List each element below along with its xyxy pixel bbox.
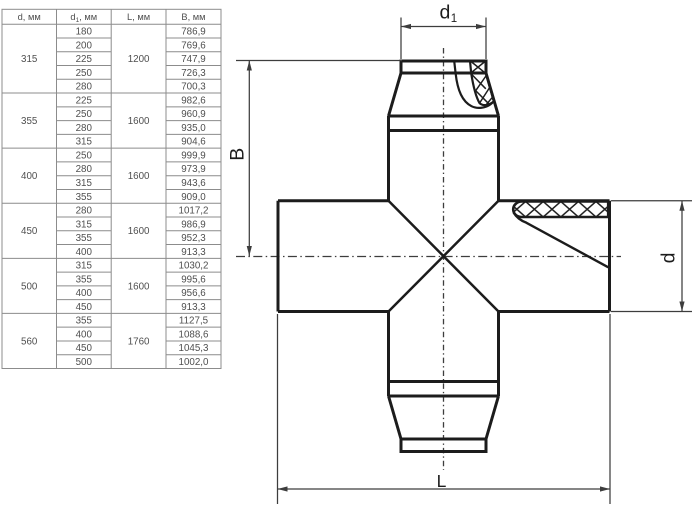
svg-text:355: 355	[21, 116, 38, 127]
svg-text:180: 180	[76, 26, 93, 37]
svg-text:1600: 1600	[128, 226, 150, 237]
svg-text:1760: 1760	[128, 336, 150, 347]
svg-text:999,9: 999,9	[181, 150, 206, 161]
svg-text:786,9: 786,9	[181, 26, 206, 37]
svg-text:L: L	[437, 471, 447, 491]
svg-text:982,6: 982,6	[181, 95, 206, 106]
svg-text:1127,5: 1127,5	[179, 316, 209, 327]
svg-text:747,9: 747,9	[181, 54, 206, 65]
svg-text:1045,3: 1045,3	[179, 343, 210, 354]
svg-text:904,6: 904,6	[181, 137, 206, 148]
svg-text:250: 250	[76, 150, 93, 161]
svg-text:1030,2: 1030,2	[179, 261, 209, 272]
svg-text:726,3: 726,3	[181, 68, 206, 79]
svg-text:280: 280	[76, 164, 93, 175]
svg-text:280: 280	[76, 206, 93, 217]
svg-text:250: 250	[76, 109, 93, 120]
svg-text:315: 315	[21, 54, 38, 65]
svg-text:d: d	[658, 253, 680, 264]
svg-text:355: 355	[76, 192, 93, 203]
svg-text:d: d	[440, 2, 451, 24]
svg-text:280: 280	[76, 82, 93, 93]
svg-text:400: 400	[21, 171, 38, 182]
svg-text:250: 250	[76, 68, 93, 79]
svg-text:700,3: 700,3	[181, 82, 206, 93]
svg-text:315: 315	[76, 219, 93, 230]
svg-text:1: 1	[451, 13, 457, 25]
svg-text:450: 450	[76, 302, 93, 313]
svg-text:956,6: 956,6	[181, 288, 206, 299]
svg-text:355: 355	[76, 233, 93, 244]
svg-text:B, мм: B, мм	[181, 12, 205, 22]
svg-text:315: 315	[76, 137, 93, 148]
svg-text:1017,2: 1017,2	[179, 206, 209, 217]
svg-text:400: 400	[76, 247, 93, 258]
svg-text:769,6: 769,6	[181, 40, 206, 51]
svg-text:1600: 1600	[128, 116, 150, 127]
svg-text:935,0: 935,0	[181, 123, 206, 134]
svg-text:400: 400	[76, 288, 93, 299]
svg-text:952,3: 952,3	[181, 233, 206, 244]
svg-text:913,3: 913,3	[181, 247, 206, 258]
svg-text:d, мм: d, мм	[18, 12, 41, 22]
svg-text:450: 450	[76, 343, 93, 354]
svg-text:L, мм: L, мм	[127, 12, 150, 22]
svg-text:943,6: 943,6	[181, 178, 206, 189]
svg-text:200: 200	[76, 40, 93, 51]
svg-text:986,9: 986,9	[181, 219, 206, 230]
svg-text:315: 315	[76, 178, 93, 189]
svg-text:315: 315	[76, 261, 93, 272]
svg-text:1600: 1600	[128, 281, 150, 292]
svg-text:280: 280	[76, 123, 93, 134]
svg-text:1600: 1600	[128, 171, 150, 182]
svg-text:560: 560	[21, 336, 38, 347]
svg-text:500: 500	[76, 357, 93, 368]
svg-text:B: B	[226, 148, 248, 161]
svg-text:450: 450	[21, 226, 38, 237]
svg-text:355: 355	[76, 274, 93, 285]
svg-text:1002,0: 1002,0	[179, 357, 210, 368]
svg-text:1200: 1200	[128, 54, 150, 65]
svg-text:d1, мм: d1, мм	[70, 12, 97, 24]
svg-text:500: 500	[21, 281, 38, 292]
svg-text:355: 355	[76, 316, 93, 327]
svg-text:913,3: 913,3	[181, 302, 206, 313]
svg-text:909,0: 909,0	[181, 192, 206, 203]
svg-text:973,9: 973,9	[181, 164, 206, 175]
svg-text:400: 400	[76, 329, 93, 340]
svg-text:1088,6: 1088,6	[179, 329, 210, 340]
svg-text:995,6: 995,6	[181, 274, 206, 285]
svg-text:960,9: 960,9	[181, 109, 206, 120]
svg-text:225: 225	[76, 95, 93, 106]
svg-text:225: 225	[76, 54, 93, 65]
